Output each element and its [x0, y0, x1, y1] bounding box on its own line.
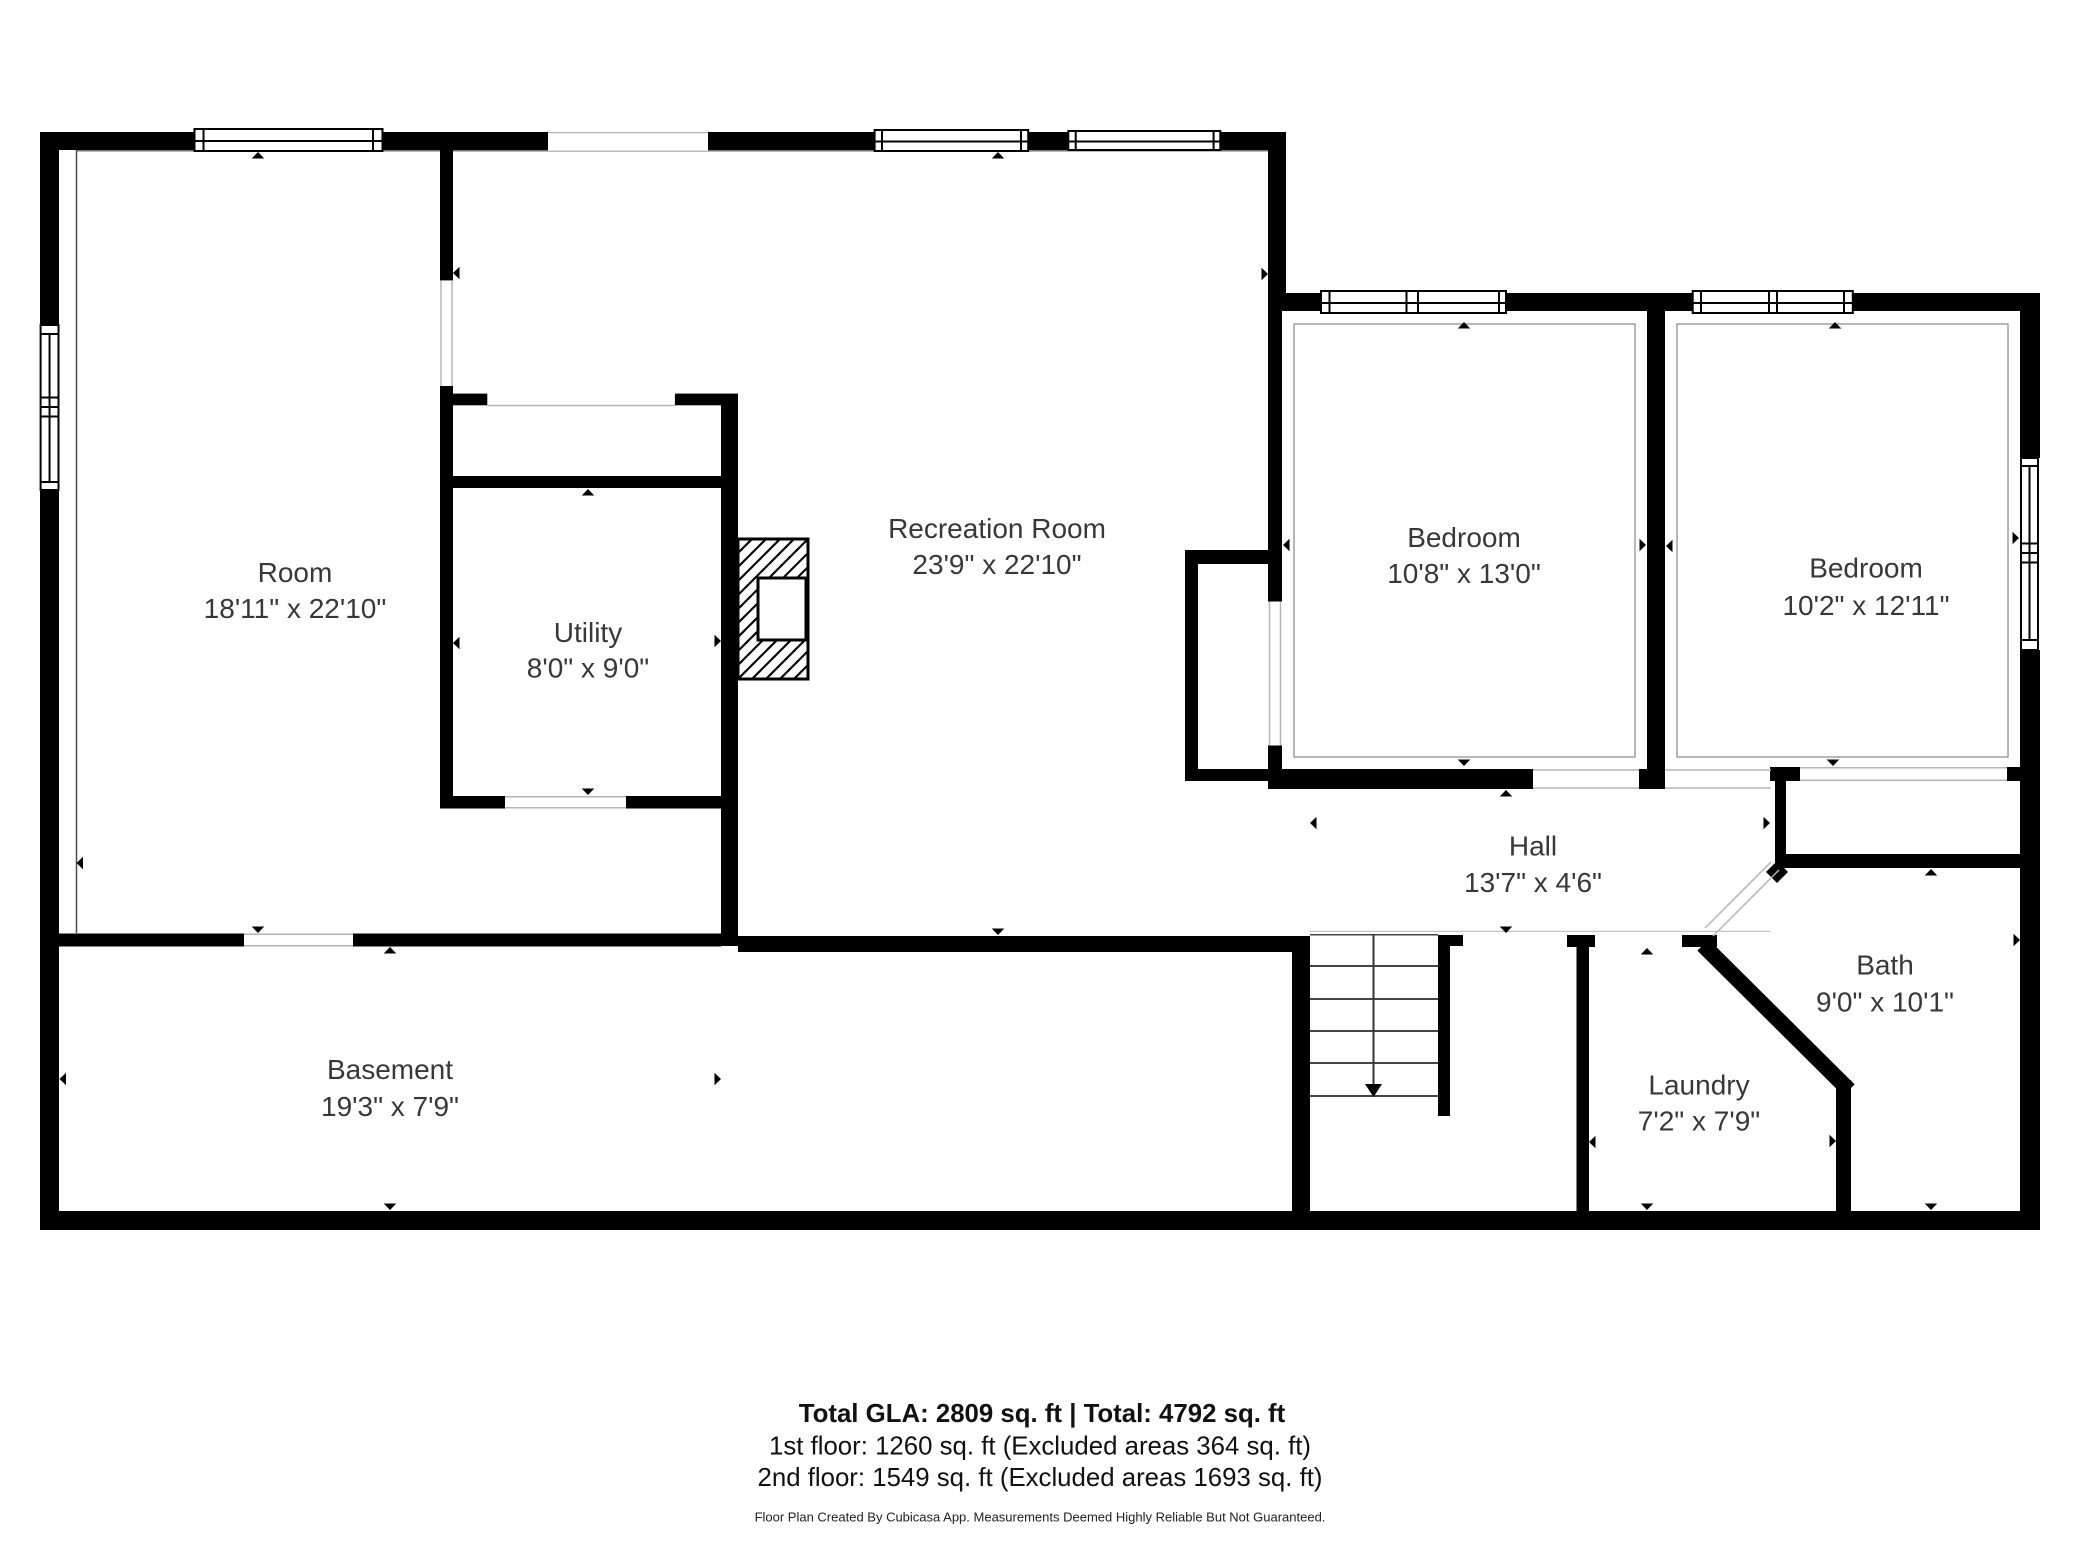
- svg-text:1st floor: 1260 sq. ft (Exclud: 1st floor: 1260 sq. ft (Excluded areas 3…: [769, 1433, 1311, 1461]
- svg-text:Bath: Bath: [1856, 950, 1914, 981]
- svg-text:23'9" x 22'10": 23'9" x 22'10": [912, 549, 1081, 580]
- svg-text:10'8" x 13'0": 10'8" x 13'0": [1387, 558, 1541, 589]
- svg-text:13'7" x 4'6": 13'7" x 4'6": [1464, 867, 1602, 898]
- svg-text:Total GLA: 2809 sq. ft | Total: Total GLA: 2809 sq. ft | Total: 4792 sq.…: [799, 1400, 1286, 1428]
- svg-text:Bedroom: Bedroom: [1407, 522, 1521, 553]
- svg-text:7'2" x 7'9": 7'2" x 7'9": [1638, 1106, 1760, 1137]
- svg-text:Room: Room: [258, 557, 333, 588]
- svg-text:Laundry: Laundry: [1648, 1070, 1749, 1101]
- svg-text:18'11" x 22'10": 18'11" x 22'10": [204, 593, 387, 624]
- svg-text:Recreation Room: Recreation Room: [888, 513, 1106, 544]
- svg-text:Bedroom: Bedroom: [1809, 553, 1923, 584]
- svg-text:Basement: Basement: [327, 1054, 453, 1085]
- svg-text:Utility: Utility: [554, 617, 622, 648]
- svg-text:10'2" x 12'11": 10'2" x 12'11": [1782, 590, 1949, 621]
- svg-text:Hall: Hall: [1509, 831, 1557, 862]
- svg-text:Floor Plan Created By Cubicasa: Floor Plan Created By Cubicasa App. Meas…: [755, 1510, 1326, 1525]
- svg-text:2nd floor: 1549 sq. ft (Exclud: 2nd floor: 1549 sq. ft (Excluded areas 1…: [758, 1464, 1323, 1492]
- svg-text:9'0" x 10'1": 9'0" x 10'1": [1816, 987, 1954, 1018]
- svg-text:8'0" x 9'0": 8'0" x 9'0": [527, 653, 649, 684]
- svg-text:19'3" x 7'9": 19'3" x 7'9": [321, 1091, 459, 1122]
